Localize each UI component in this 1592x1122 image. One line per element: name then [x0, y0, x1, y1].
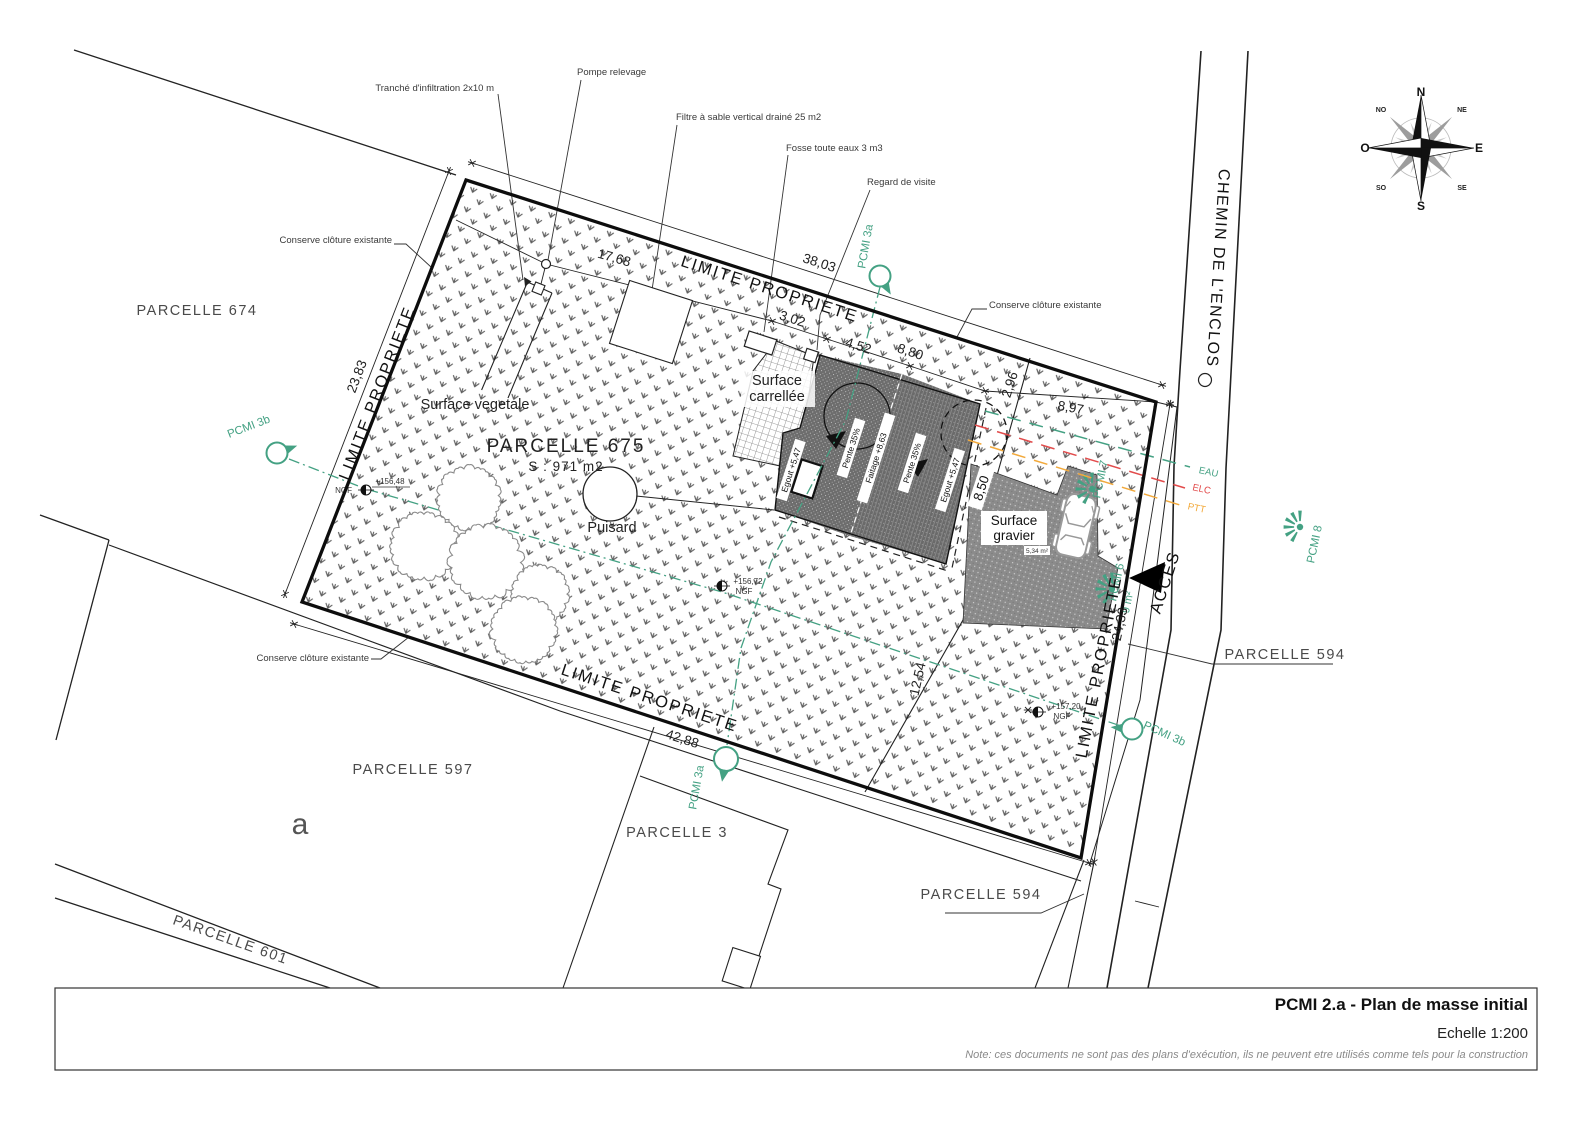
- svg-text:Note: ces documents ne sont pa: Note: ces documents ne sont pas des plan…: [965, 1049, 1528, 1061]
- svg-text:5,34 m²: 5,34 m²: [1026, 548, 1049, 555]
- svg-text:Echelle 1:200: Echelle 1:200: [1437, 1025, 1528, 1042]
- svg-text:Conserve clôture existante: Conserve clôture existante: [257, 653, 369, 664]
- svg-text:PARCELLE 597: PARCELLE 597: [353, 762, 474, 778]
- svg-text:+156,48: +156,48: [375, 477, 405, 486]
- svg-text:NO: NO: [1376, 107, 1387, 114]
- svg-text:Tranché d'infiltration 2x10 m: Tranché d'infiltration 2x10 m: [375, 83, 494, 94]
- svg-text:NE: NE: [1457, 107, 1467, 114]
- svg-text:NGF: NGF: [1054, 712, 1071, 721]
- svg-text:Surface vegetale: Surface vegetale: [421, 397, 530, 413]
- svg-text:NGF: NGF: [736, 587, 753, 596]
- svg-text:PCMI 2.a - Plan de masse initi: PCMI 2.a - Plan de masse initial: [1275, 995, 1528, 1014]
- svg-text:N: N: [1417, 85, 1426, 99]
- svg-text:Regard de visite: Regard de visite: [867, 177, 936, 188]
- svg-text:S : 971 m2: S : 971 m2: [528, 459, 603, 474]
- svg-text:gravier: gravier: [993, 528, 1035, 543]
- svg-text:SE: SE: [1457, 185, 1467, 192]
- svg-text:+156,72: +156,72: [733, 577, 763, 586]
- svg-text:Fosse toute eaux 3 m3: Fosse toute eaux 3 m3: [786, 143, 883, 154]
- svg-text:PARCELLE 675: PARCELLE 675: [487, 436, 646, 457]
- svg-text:O: O: [1360, 141, 1369, 155]
- svg-text:SO: SO: [1376, 185, 1387, 192]
- svg-text:PARCELLE 594: PARCELLE 594: [921, 887, 1042, 903]
- svg-text:S: S: [1417, 199, 1425, 213]
- svg-text:Conserve clôture existante: Conserve clôture existante: [280, 235, 392, 246]
- svg-text:Puisard: Puisard: [587, 520, 636, 536]
- svg-text:Surface: Surface: [752, 373, 802, 389]
- svg-text:E: E: [1475, 141, 1483, 155]
- svg-text:a: a: [292, 808, 309, 841]
- svg-text:Conserve clôture existante: Conserve clôture existante: [989, 300, 1101, 311]
- svg-text:PARCELLE 3: PARCELLE 3: [626, 825, 728, 841]
- svg-text:Filtre à sable vertical drainé: Filtre à sable vertical drainé 25 m2: [676, 112, 821, 123]
- svg-text:+157,20: +157,20: [1051, 702, 1081, 711]
- svg-text:carrellée: carrellée: [749, 389, 805, 405]
- svg-text:Pompe relevage: Pompe relevage: [577, 67, 646, 78]
- svg-text:Surface: Surface: [991, 513, 1038, 528]
- svg-text:PARCELLE 594: PARCELLE 594: [1225, 647, 1346, 663]
- svg-text:PARCELLE 674: PARCELLE 674: [137, 303, 258, 319]
